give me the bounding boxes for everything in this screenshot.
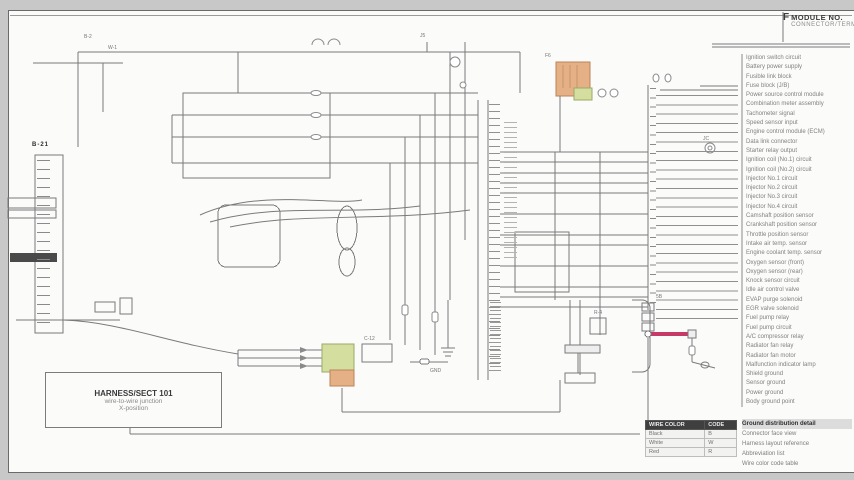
legend-row: Sensor ground bbox=[741, 379, 853, 388]
legend-footer-row: Ground distribution detail bbox=[742, 419, 852, 429]
legend-row: Camshaft position sensor bbox=[741, 212, 853, 221]
scanned-wiring-diagram-page: F MODULE NO. CONNECTOR/TERM. Ignition sw… bbox=[0, 0, 854, 480]
legend-row: EGR valve solenoid bbox=[741, 305, 853, 314]
legend-row: Injector No.2 circuit bbox=[741, 184, 853, 193]
connector-green-bottom bbox=[322, 344, 354, 386]
title-line-2: CONNECTOR/TERM. bbox=[791, 22, 854, 28]
legend-row: Ignition switch circuit bbox=[741, 54, 853, 63]
legend-row: Crankshaft position sensor bbox=[741, 221, 853, 230]
legend-row: Injector No.3 circuit bbox=[741, 193, 853, 202]
legend-row: Throttle position sensor bbox=[741, 231, 853, 240]
red-jumper-wire bbox=[645, 330, 715, 368]
wire-label: B-2 bbox=[84, 34, 92, 40]
legend-row: Fuel pump relay bbox=[741, 314, 853, 323]
legend-row: Idle air control valve bbox=[741, 286, 853, 295]
note-box: HARNESS/SECT 101 wire-to-wire junction X… bbox=[45, 372, 222, 428]
wire-label: 5B bbox=[656, 294, 662, 300]
wire-color-table-body: BlackBWhiteWRedR bbox=[646, 430, 737, 457]
wire-label: GND bbox=[430, 368, 441, 374]
legend-row: Fuse block (J/B) bbox=[741, 82, 853, 91]
legend-row: Engine coolant temp. sensor bbox=[741, 249, 853, 258]
table-row: RedR bbox=[646, 448, 737, 457]
table-header-cell: WIRE COLOR bbox=[646, 421, 705, 430]
table-header-cell: CODE bbox=[705, 421, 737, 430]
table-row: BlackB bbox=[646, 430, 737, 439]
legend-footer-list: Ground distribution detailConnector face… bbox=[742, 419, 852, 469]
wire-label: JC bbox=[703, 136, 709, 142]
wire-label: J5 bbox=[420, 33, 425, 39]
wire-label: F6 bbox=[545, 53, 551, 59]
legend-row: Battery power supply bbox=[741, 63, 853, 72]
table-cell: R bbox=[705, 448, 737, 457]
legend-row: Knock sensor circuit bbox=[741, 277, 853, 286]
legend-footer-row: Abbreviation list bbox=[742, 449, 852, 459]
table-cell: W bbox=[705, 439, 737, 448]
legend-row: Power source control module bbox=[741, 91, 853, 100]
table-cell: B bbox=[705, 430, 737, 439]
legend-row: Starter relay output bbox=[741, 147, 853, 156]
legend-row: Oxygen sensor (front) bbox=[741, 259, 853, 268]
legend-row: Radiator fan relay bbox=[741, 342, 853, 351]
legend-row: Fuel pump circuit bbox=[741, 324, 853, 333]
legend-row: Speed sensor input bbox=[741, 119, 853, 128]
legend-row: Engine control module (ECM) bbox=[741, 128, 853, 137]
legend-row: Data link connector bbox=[741, 138, 853, 147]
wire-label: W-1 bbox=[108, 45, 117, 51]
table-cell: Black bbox=[646, 430, 705, 439]
ground-symbol bbox=[410, 300, 455, 364]
legend-row: Radiator fan motor bbox=[741, 352, 853, 361]
legend-row: Power ground bbox=[741, 389, 853, 398]
legend-list: Ignition switch circuitBattery power sup… bbox=[741, 54, 853, 407]
legend-row: Ignition coil (No.1) circuit bbox=[741, 156, 853, 165]
legend-row: A/C compressor relay bbox=[741, 333, 853, 342]
note-line-3: X-position bbox=[46, 405, 221, 412]
pin-strip-hatch bbox=[490, 302, 501, 374]
wire-label: R-4 bbox=[594, 310, 602, 316]
legend-row: Malfunction indicator lamp bbox=[741, 361, 853, 370]
legend-footer-row: Harness layout reference bbox=[742, 439, 852, 449]
connector-id-label: B-21 bbox=[32, 142, 49, 148]
table-cell: Red bbox=[646, 448, 705, 457]
legend-row: Injector No.4 circuit bbox=[741, 203, 853, 212]
legend-footer-row: Wire color code table bbox=[742, 459, 852, 469]
title-block: F MODULE NO. CONNECTOR/TERM. bbox=[783, 13, 854, 41]
left-connector-pins bbox=[37, 160, 50, 328]
legend-row: Ignition coil (No.2) circuit bbox=[741, 166, 853, 175]
legend-leader-lines bbox=[656, 95, 738, 320]
legend-row: Fusible link block bbox=[741, 73, 853, 82]
title-line-1: MODULE NO. bbox=[791, 13, 854, 22]
note-line-1: HARNESS/SECT 101 bbox=[46, 389, 221, 398]
legend-row: EVAP purge solenoid bbox=[741, 296, 853, 305]
table-row: WhiteW bbox=[646, 439, 737, 448]
wire-label: C-12 bbox=[364, 336, 375, 342]
legend-row: Shield ground bbox=[741, 370, 853, 379]
legend-row: Combination meter assembly bbox=[741, 100, 853, 109]
table-cell: White bbox=[646, 439, 705, 448]
legend-row: Tachometer signal bbox=[741, 110, 853, 119]
wire-color-table-header: WIRE COLORCODE bbox=[646, 421, 737, 430]
note-line-2: wire-to-wire junction bbox=[46, 398, 221, 405]
pin-strip-labels bbox=[504, 122, 517, 262]
legend-footer-row: Connector face view bbox=[742, 429, 852, 439]
legend-row: Body ground point bbox=[741, 398, 853, 407]
title-symbol: F bbox=[783, 13, 789, 23]
connector-orange-top bbox=[556, 62, 592, 152]
wire-color-table: WIRE COLORCODE BlackBWhiteWRedR bbox=[645, 420, 737, 457]
legend-row: Intake air temp. sensor bbox=[741, 240, 853, 249]
legend-row: Oxygen sensor (rear) bbox=[741, 268, 853, 277]
legend-row: Injector No.1 circuit bbox=[741, 175, 853, 184]
